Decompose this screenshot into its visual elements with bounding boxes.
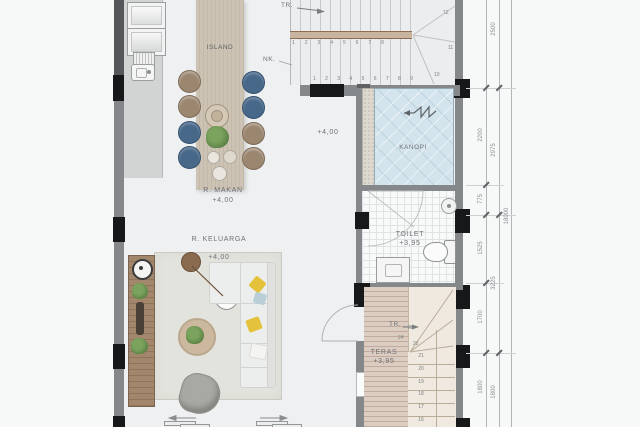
dimension-value: 2200 [478,118,484,152]
column [113,416,125,427]
dimension-value: 1700 [478,300,484,334]
table-plant [206,126,229,148]
sofa-backrest [267,263,275,387]
extension-line [466,353,516,354]
left-wall-top [114,0,124,75]
column [355,212,369,229]
sofa-chaise [209,262,244,304]
dimension-line [511,0,512,427]
dining-chair-brown [242,122,265,145]
table-bowl [205,104,229,128]
console-plant [131,338,148,354]
dimension-value: 1800 [478,370,484,404]
dimension-overall: 18000 [504,199,510,233]
dining-chair-blue [178,146,201,169]
plate [223,150,237,164]
dimension-value: 1525 [478,231,484,265]
toilet-label: TOILET [380,231,440,238]
canopy-glass [374,88,454,187]
console-plant [132,283,148,299]
shower-head [441,198,457,214]
stair-numbers-lower-run: 123456789 [313,74,413,83]
stair-numbers-upper-run: 12345678 [292,38,384,47]
terrace-level: +3,95 [358,358,410,365]
dimension-value: 3225 [491,266,497,300]
column [113,217,125,242]
kitchen-island-dining-table [196,0,244,190]
terrace-label: TERAS [358,349,410,356]
family-room-level: +4,00 [184,254,254,261]
dimension-value: 2975 [491,133,497,167]
dining-chair-brown [178,95,201,118]
hall-level-label: +4,00 [298,129,358,136]
console-decor [136,302,144,335]
floor-plan: ISLAND R. MAKAN +4,00 12345678 123456789… [0,0,640,427]
dining-chair-blue [242,96,265,119]
toilet-level: +3,95 [380,240,440,247]
family-room-label: R. KELUARGA [184,236,254,243]
column [310,84,344,97]
stair-number: 12 [443,10,449,16]
dimension-value: 2500 [491,12,497,46]
extension-line [466,88,516,89]
dining-chair-brown [178,70,201,93]
dimension-value: 1800 [491,375,497,409]
stair-direction-label-tr-bottom: TR. [389,321,401,328]
kitchen-appliance [127,2,166,29]
stair-number: 24 [398,335,404,341]
stair-number: 23 [408,325,414,331]
canopy-label: KANOPI [374,144,452,151]
terrace-deck [364,287,408,427]
dimension-value: 775 [478,182,484,216]
dining-chair-blue [178,121,201,144]
coffee-table-plant [186,326,204,344]
kitchen-sink [131,64,155,81]
faucet [147,70,151,74]
stair-direction-label-tr: TR. [281,2,293,9]
stair-numbers-bottom: 212019181716 [414,353,428,423]
stair-direction-label-nk: NK. [263,56,275,63]
stair-number: 10 [434,72,440,78]
wall [356,88,362,283]
stair-edge-line [436,330,437,427]
dining-chair-blue [242,71,265,94]
pillow-white [249,343,268,361]
column [113,344,125,369]
dining-room-level: +4,00 [188,197,258,204]
stair-number: 22 [413,341,419,347]
plate [212,166,227,181]
stair-number: 11 [448,45,453,51]
dining-room-label: R. MAKAN [188,187,258,194]
island-label: ISLAND [196,44,244,51]
vanity-sink [376,257,410,283]
plate [207,151,220,164]
wall [362,185,455,191]
console-lamp [132,259,153,280]
dining-chair-brown [242,147,265,170]
